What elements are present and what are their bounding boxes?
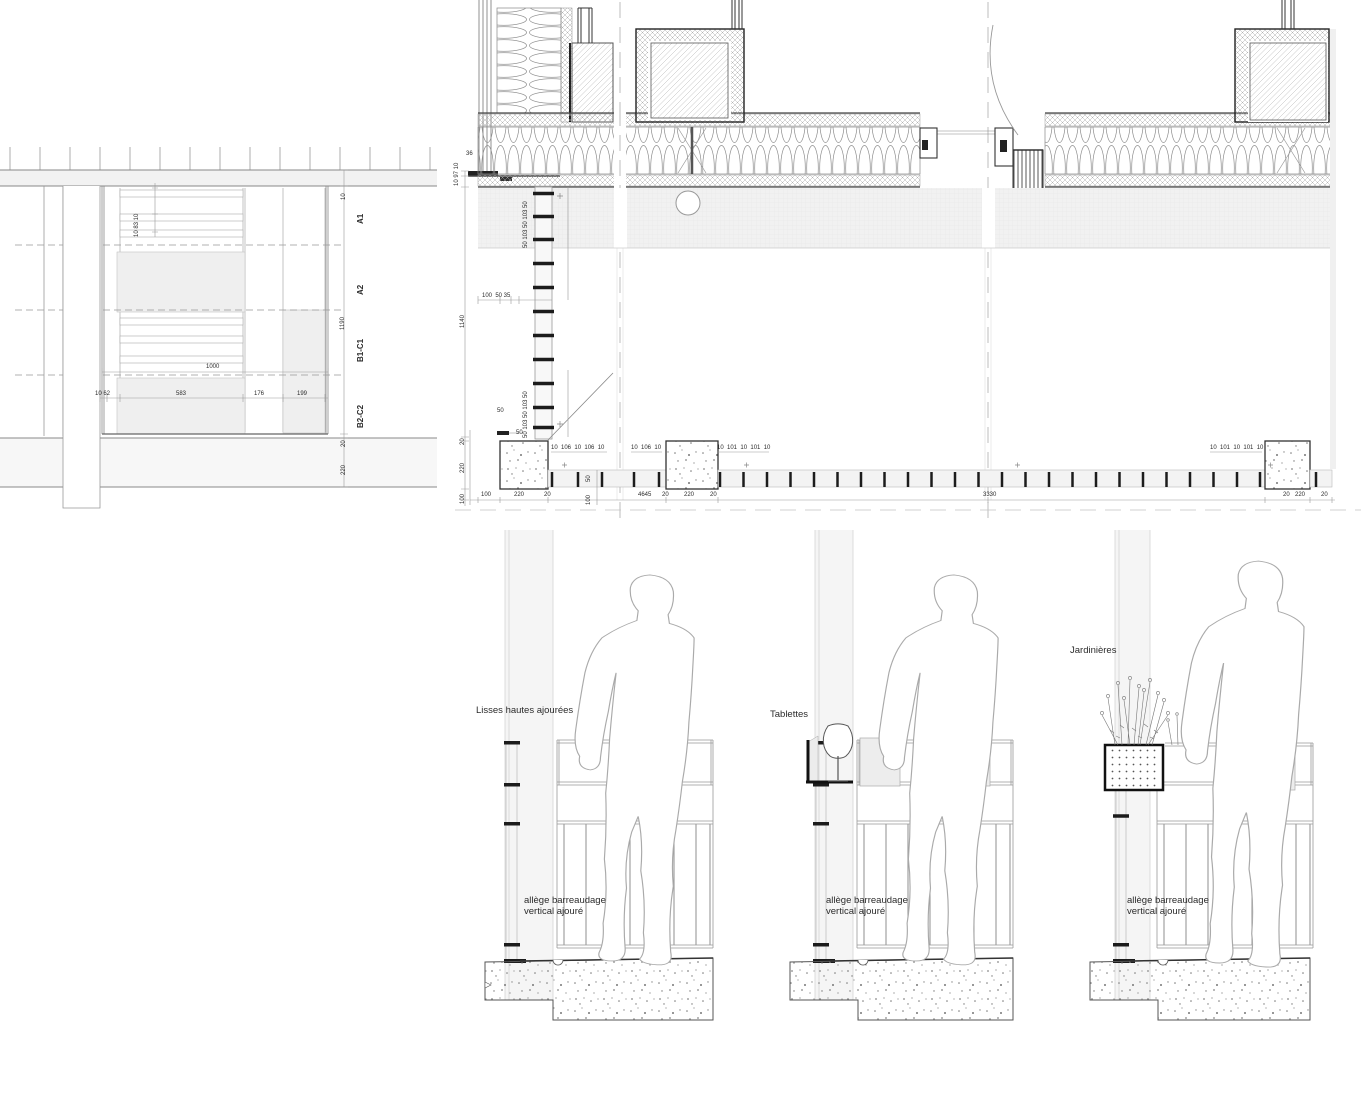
elevation-tablettes: [790, 530, 1013, 1020]
door-swing-arc: [990, 25, 1018, 135]
wall-pier-band: [505, 530, 553, 1000]
technical-drawing: [0, 0, 1361, 1098]
balcony-slab: [1090, 958, 1310, 1020]
plan-fragment: [0, 147, 437, 508]
roller-shutter: [1013, 150, 1043, 190]
elevation-lisses-hautes: [485, 530, 713, 1020]
elevation-jardinieres: [1090, 530, 1313, 1020]
leader-line: [548, 373, 613, 440]
timber-post-1: [572, 43, 613, 122]
window-frame-stub: [578, 8, 592, 43]
floor-strip: [478, 188, 1333, 248]
timber-post-3: [1235, 0, 1329, 122]
human-silhouette: [1181, 561, 1304, 967]
pier-2: [666, 441, 718, 489]
door-opening-detail: [920, 25, 1043, 190]
architectural-drawing-sheet: 10 83 10 10 1190 20 220 1000 10 62 583 1…: [0, 0, 1361, 1098]
wall-lines: [44, 186, 63, 436]
timber-post-2: [636, 0, 744, 122]
column: [63, 186, 100, 508]
joist-ticks: [10, 147, 430, 170]
top-slab-band: [0, 170, 437, 186]
human-silhouette: [575, 575, 694, 965]
balustrade-plan: [500, 441, 1332, 489]
balcony-slab: [485, 958, 713, 1020]
facade-wall-band-left: [478, 113, 920, 187]
wall-pier-band: [815, 530, 853, 1000]
drain-circle: [676, 191, 700, 215]
pier-1: [500, 441, 548, 489]
balcony-slab: [790, 958, 1013, 1020]
facade-plan-detail: [455, 0, 1361, 518]
